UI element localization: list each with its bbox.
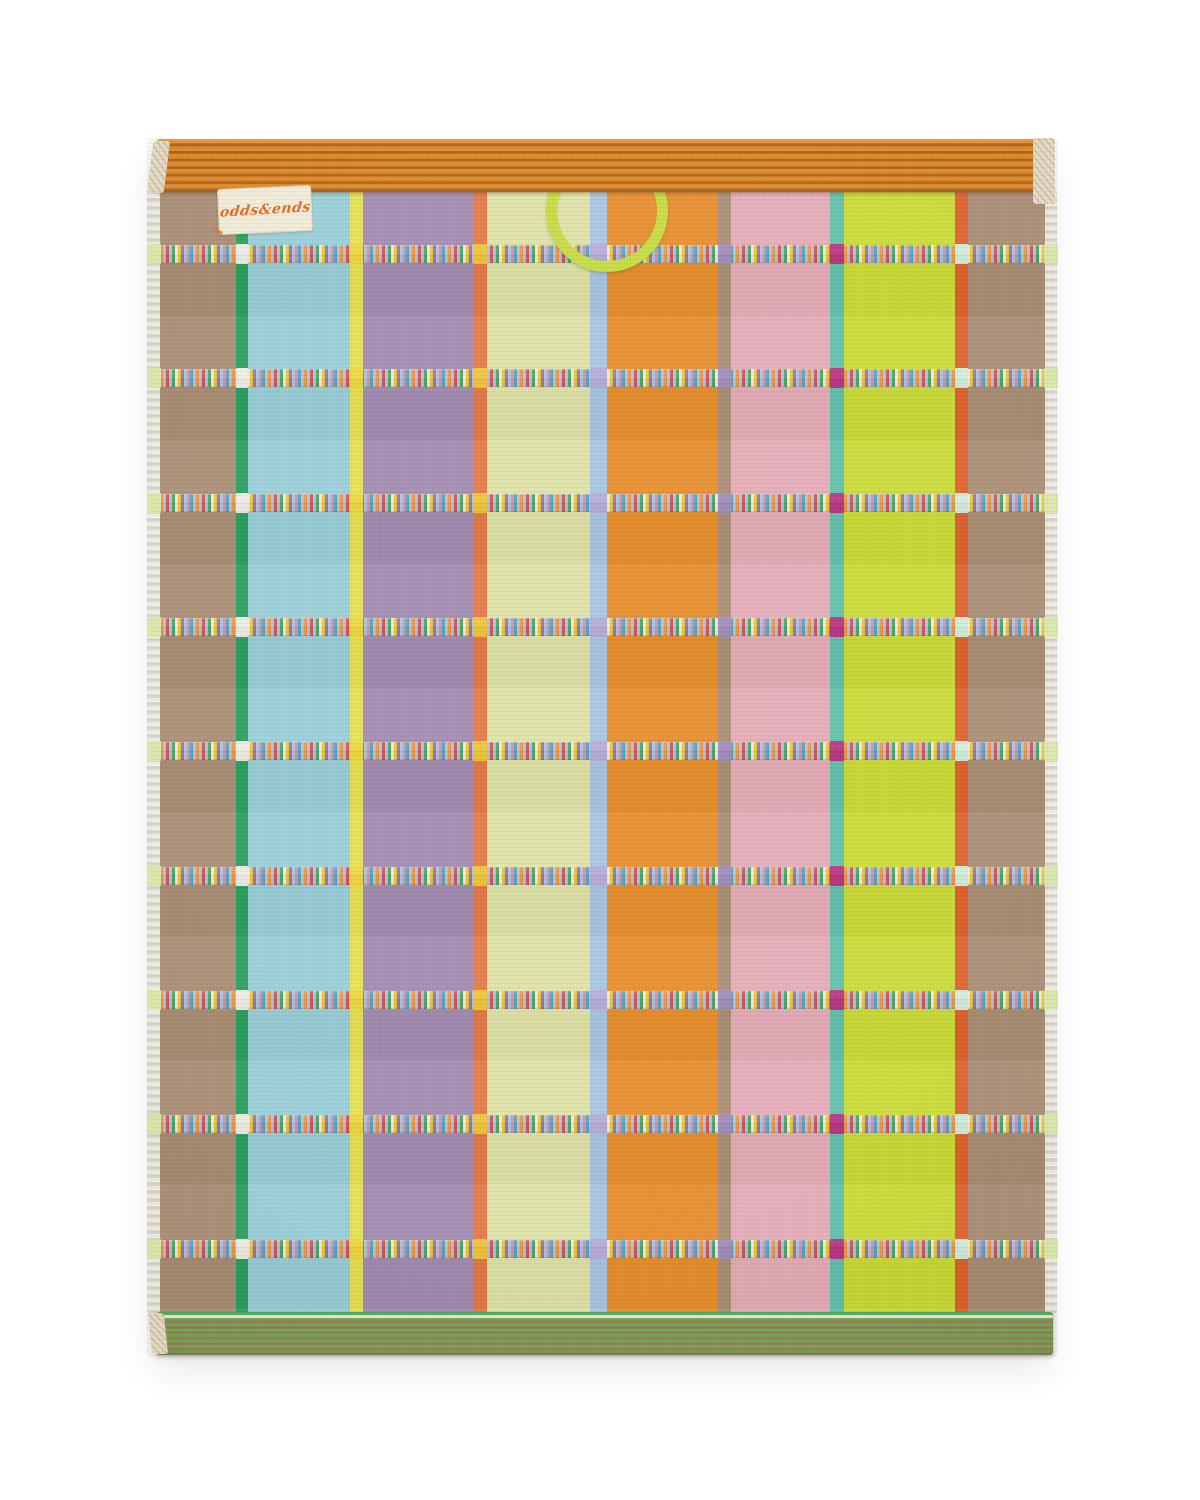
brand-label-text: odds&ends — [219, 199, 312, 221]
stitch-accent-teal-cross — [830, 990, 844, 1010]
stitch-accent-taupe-cross — [718, 990, 731, 1010]
stitch-accent-vermilion2-cross — [955, 244, 968, 264]
stitch-accent-vermilion-cross — [473, 1239, 487, 1259]
stitch-accent-yellow-cross — [350, 990, 363, 1010]
stitch-accent-selvedge-left — [147, 368, 161, 388]
stitch-accent-selvedge-right — [1044, 244, 1058, 264]
stitch-accent-teal-cross — [830, 1239, 844, 1259]
stitch-accent-taupe-cross — [718, 741, 731, 761]
stitch-accent-selvedge-right — [1044, 368, 1058, 388]
stitch-accent-vermilion2-cross — [955, 1239, 968, 1259]
stitch-accent-vermilion2-cross — [955, 990, 968, 1010]
stitch-accent-selvedge-left — [147, 1114, 161, 1134]
stitch-accent-selvedge-left — [147, 244, 161, 264]
stitch-accent-green-cross — [236, 1239, 248, 1259]
stitch-row — [160, 618, 1045, 636]
stitch-accent-green-cross — [236, 990, 248, 1010]
stitch-accent-taupe-cross — [718, 1239, 731, 1259]
stitch-accent-vermilion2-cross — [955, 741, 968, 761]
towel-body — [160, 192, 1045, 1313]
stitch-accent-green-cross — [236, 866, 248, 886]
top-border-band — [157, 139, 1038, 192]
stitch-accent-vermilion-cross — [473, 244, 487, 264]
stitch-accent-vermilion2-cross — [955, 866, 968, 886]
stitch-accent-yellow-cross — [350, 1114, 363, 1134]
stitch-accent-taupe-cross — [718, 866, 731, 886]
stitch-row — [160, 742, 1045, 760]
stitch-row — [160, 1115, 1045, 1133]
stitch-accent-vermilion-cross — [473, 866, 487, 886]
stitch-accent-teal-cross — [830, 244, 844, 264]
stitch-accent-green-cross — [236, 493, 248, 513]
stitch-accent-periwinkle-cross — [590, 493, 607, 513]
bottom-border-band — [156, 1312, 1053, 1355]
stitch-accent-periwinkle-cross — [590, 866, 607, 886]
stitch-accent-taupe-cross — [718, 244, 731, 264]
stitch-accent-taupe-cross — [718, 617, 731, 637]
stitch-accent-teal-cross — [830, 1114, 844, 1134]
stitch-accent-periwinkle-cross — [590, 741, 607, 761]
stitch-row — [160, 369, 1045, 387]
stitch-accent-yellow-cross — [350, 741, 363, 761]
stitch-accent-selvedge-left — [147, 741, 161, 761]
stitch-accent-vermilion-cross — [473, 1114, 487, 1134]
stitch-accent-selvedge-right — [1044, 1239, 1058, 1259]
stitch-accent-yellow-cross — [350, 244, 363, 264]
stitch-accent-periwinkle-cross — [590, 990, 607, 1010]
stitch-accent-vermilion-cross — [473, 741, 487, 761]
stitch-accent-vermilion-cross — [473, 368, 487, 388]
stitch-accent-selvedge-right — [1044, 1114, 1058, 1134]
stitch-accent-periwinkle-cross — [590, 617, 607, 637]
stitch-accent-teal-cross — [830, 617, 844, 637]
stitch-accent-selvedge-left — [147, 866, 161, 886]
stitch-row — [160, 494, 1045, 512]
stitch-accent-green-cross — [236, 617, 248, 637]
stitch-accent-periwinkle-cross — [590, 368, 607, 388]
stitch-accent-green-cross — [236, 1114, 248, 1134]
stitch-accent-yellow-cross — [350, 368, 363, 388]
stitch-accent-taupe-cross — [718, 493, 731, 513]
stitch-accent-selvedge-right — [1044, 741, 1058, 761]
stitch-row — [160, 1240, 1045, 1258]
product-photo: odds&ends — [0, 0, 1200, 1500]
stitch-accent-teal-cross — [830, 866, 844, 886]
stitch-accent-teal-cross — [830, 493, 844, 513]
stitch-accent-yellow-cross — [350, 617, 363, 637]
stitch-accent-selvedge-right — [1044, 866, 1058, 886]
stitch-accent-teal-cross — [830, 741, 844, 761]
stitch-accent-vermilion2-cross — [955, 617, 968, 637]
stitch-accent-selvedge-left — [147, 990, 161, 1010]
stitch-accent-vermilion-cross — [473, 493, 487, 513]
brand-label: odds&ends — [217, 185, 313, 235]
stitch-accent-vermilion2-cross — [955, 1114, 968, 1134]
stitch-accent-selvedge-left — [147, 1239, 161, 1259]
stitch-accent-taupe-cross — [718, 368, 731, 388]
stitch-accent-selvedge-right — [1044, 990, 1058, 1010]
stitch-accent-vermilion-cross — [473, 617, 487, 637]
stitch-accent-green-cross — [236, 741, 248, 761]
stitch-accent-selvedge-right — [1044, 493, 1058, 513]
stitch-row — [160, 991, 1045, 1009]
stitch-accent-taupe-cross — [718, 1114, 731, 1134]
stitch-accent-teal-cross — [830, 368, 844, 388]
stitch-accent-yellow-cross — [350, 866, 363, 886]
stitch-accent-periwinkle-cross — [590, 1114, 607, 1134]
stitch-accent-green-cross — [236, 368, 248, 388]
stitch-accent-vermilion2-cross — [955, 493, 968, 513]
stitch-accent-selvedge-left — [147, 493, 161, 513]
stitch-accent-green-cross — [236, 244, 248, 264]
stitch-accent-yellow-cross — [350, 493, 363, 513]
stitch-accent-vermilion2-cross — [955, 368, 968, 388]
stitch-accent-selvedge-right — [1044, 617, 1058, 637]
top-right-corner-fold — [1033, 138, 1055, 204]
stitch-accent-vermilion-cross — [473, 990, 487, 1010]
stitch-accent-yellow-cross — [350, 1239, 363, 1259]
stitch-accent-periwinkle-cross — [590, 1239, 607, 1259]
stitch-row — [160, 867, 1045, 885]
stitch-accent-selvedge-left — [147, 617, 161, 637]
